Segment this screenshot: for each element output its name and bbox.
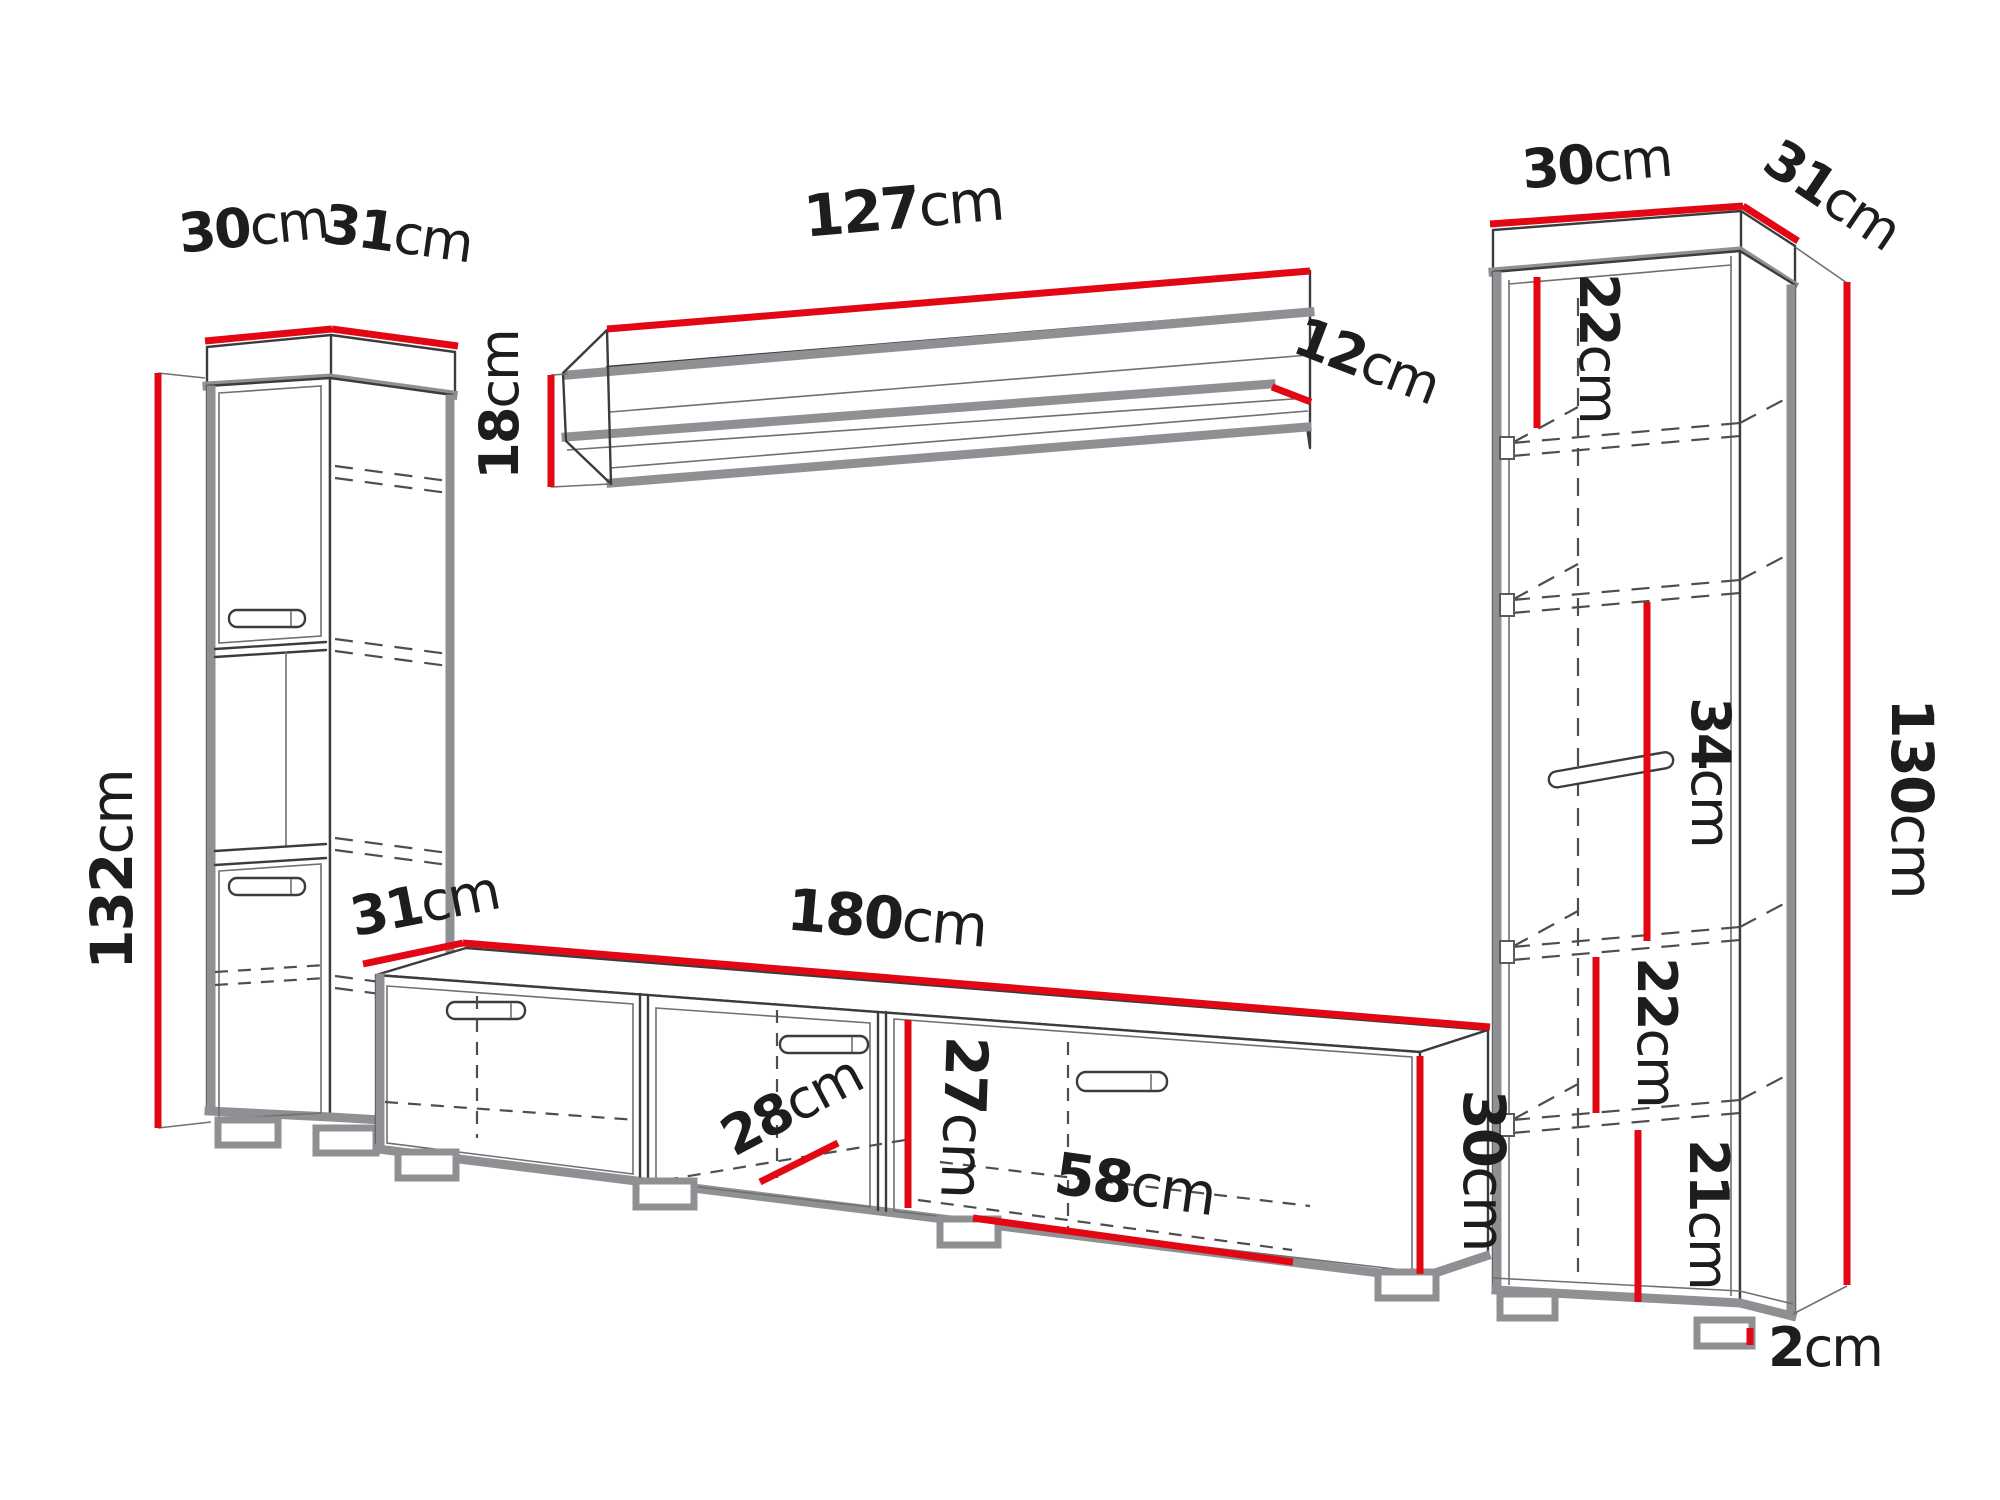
tv-door-handle [1077,1072,1167,1091]
shelf-bottom-edge [611,427,1307,483]
shelf-left-end-face [563,330,611,484]
section-top-label: 22cm [1567,273,1630,422]
shelf-corner [1500,941,1514,963]
section-lower-label: 22cm [1625,957,1688,1106]
interior-height-label: 27cm [927,1035,1001,1198]
tv-stand-width-label: 180cm [784,876,989,961]
upper-door-handle [229,610,305,627]
right-cabinet-height-label: 130cm [1878,698,1946,897]
cabinet-foot [636,1181,694,1207]
tv-stand: 31cm 180cm 27cm 28cm 58cm 30cm [345,859,1518,1298]
cabinet-foot [398,1152,456,1178]
right-cabinet-depth-label: 31cm [1753,127,1912,263]
left-cabinet-height-label: 132cm [78,770,146,969]
shelf-height-label: 18cm [468,330,531,479]
wall-shelf: 127cm 18cm 12cm [468,166,1448,487]
left-cabinet-width-dimension-line [205,329,332,341]
shelf-corner [1500,594,1514,616]
height-extension-lines [1793,247,1847,1314]
tv-stand-height-label: 30cm [1450,1089,1518,1250]
cabinet-foot [1697,1320,1752,1346]
section-middle-label: 34cm [1679,697,1742,846]
left-cabinet-depth-label: 31cm [319,192,476,275]
cabinet-foot [1378,1272,1436,1298]
diagram-canvas: 30cm 31cm 132cm [0,0,2000,1500]
shelf-width-label: 127cm [801,166,1006,251]
cabinet-foot [1500,1294,1555,1318]
section-bottom-label: 21cm [1677,1139,1740,1288]
lower-door-handle [229,878,305,895]
cabinet-foot [316,1128,376,1153]
furniture-dimension-diagram: 30cm 31cm 132cm [0,0,2000,1500]
height-extension-lines [158,373,211,1128]
tv-door-handle [780,1036,868,1053]
left-cabinet-front-face [207,378,330,1118]
tv-door-handle [447,1002,525,1019]
shelf-ledge-edge [566,384,1271,437]
left-cabinet-width-label: 30cm [175,187,330,265]
foot-height-label: 2cm [1768,1316,1882,1379]
right-cabinet-depth-dimension-line [1743,206,1798,241]
right-cabinet: 30cm 31cm 130cm 22cm 34cm 22cm 21cm 2cm [1490,126,1946,1379]
right-cabinet-width-label: 30cm [1519,126,1673,202]
shelf-corner [1500,437,1514,459]
cabinet-foot [218,1120,278,1145]
